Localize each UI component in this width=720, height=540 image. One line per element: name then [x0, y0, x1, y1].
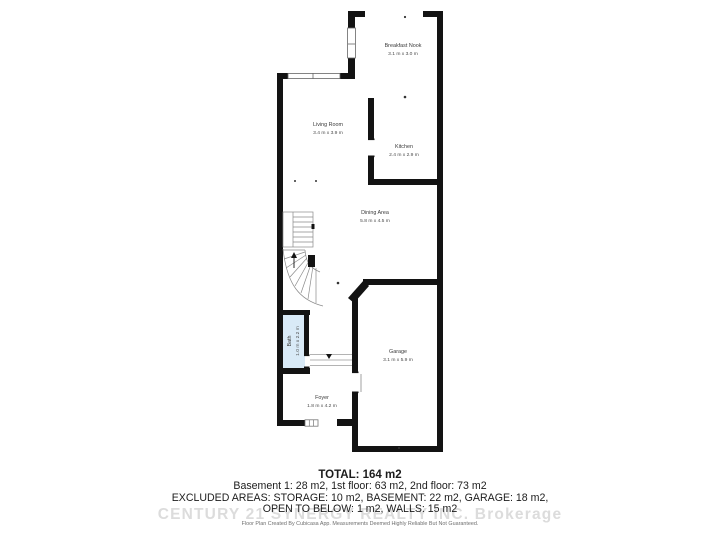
room-label-bath: Bath	[287, 335, 293, 346]
stair-winder-tread	[290, 258, 307, 277]
wall-garage-diagonal	[348, 280, 369, 303]
room-dims-living-room: 3.4 m x 3.9 m	[313, 130, 343, 136]
room-dims-kitchen: 2.4 m x 2.9 m	[389, 152, 419, 158]
staircase	[283, 212, 323, 306]
opening-cap	[368, 139, 375, 141]
measure-marker	[337, 282, 340, 285]
room-label-breakfast-nook: Breakfast Nook	[385, 43, 422, 49]
room-label-foyer: Foyer	[315, 395, 329, 401]
wall-garage-bottom	[352, 446, 443, 452]
wall-bath-bottom	[277, 368, 310, 374]
wall-foyer-bottom-stub	[337, 419, 354, 426]
opening-cap	[304, 355, 310, 357]
stair-wall-stub	[308, 255, 315, 267]
wall-garage-top	[363, 279, 443, 285]
room-label-garage: Garage	[389, 349, 407, 355]
room-label-dining-area: Dining Area	[361, 210, 389, 216]
window-breakfast-left	[348, 28, 356, 58]
floor-areas-text: Basement 1: 28 m2, 1st floor: 63 m2, 2nd…	[0, 481, 720, 493]
opening-cap	[352, 392, 359, 394]
window-living-top	[288, 73, 340, 78]
disclaimer-text: Floor Plan Created By Cubicasa App. Meas…	[0, 521, 720, 527]
room-label-living-room: Living Room	[313, 122, 343, 128]
wall-foyer-bottom-left	[277, 420, 307, 426]
excluded-areas-text-2: OPEN TO BELOW: 1 m2, WALLS: 15 m2	[0, 504, 720, 516]
wall-kitchen-bottom	[368, 179, 443, 185]
measure-marker	[404, 16, 406, 18]
foyer-steps	[310, 355, 352, 366]
stair-marker	[312, 224, 315, 229]
room-dims-garage: 3.1 m x 5.9 m	[383, 357, 413, 363]
measure-marker	[398, 447, 400, 449]
floor-plan-drawing: Breakfast Nook 3.1 m x 3.0 m Living Room…	[0, 0, 720, 540]
stair-winder-tread	[295, 261, 309, 286]
opening-cap	[352, 372, 359, 374]
bath-room-fill	[281, 314, 305, 369]
measure-marker	[404, 96, 407, 99]
wall-exterior-right	[437, 11, 443, 452]
area-summary: TOTAL: 164 m2 Basement 1: 28 m2, 1st flo…	[0, 469, 720, 516]
wall-garage-left-upper	[352, 295, 358, 373]
floor-plan-page: Breakfast Nook 3.1 m x 3.0 m Living Room…	[0, 0, 720, 540]
room-dims-breakfast-nook: 3.1 m x 3.0 m	[388, 51, 418, 57]
room-label-kitchen: Kitchen	[395, 144, 413, 150]
opening-cap	[368, 156, 375, 158]
wall-kitchen-upper	[368, 98, 374, 140]
measure-markers	[294, 16, 406, 449]
measure-marker	[294, 180, 296, 182]
room-dims-foyer: 1.8 m x 4.2 m	[307, 403, 337, 409]
room-dims-dining-area: 5.8 m x 4.5 m	[360, 218, 390, 224]
measure-marker	[315, 180, 317, 182]
room-dims-bath: 1.0 m x 2.2 m	[295, 326, 301, 356]
opening-cap	[304, 367, 310, 369]
foyer-step-arrow	[326, 354, 332, 359]
front-door	[305, 420, 318, 426]
wall-bath-right	[304, 310, 309, 356]
